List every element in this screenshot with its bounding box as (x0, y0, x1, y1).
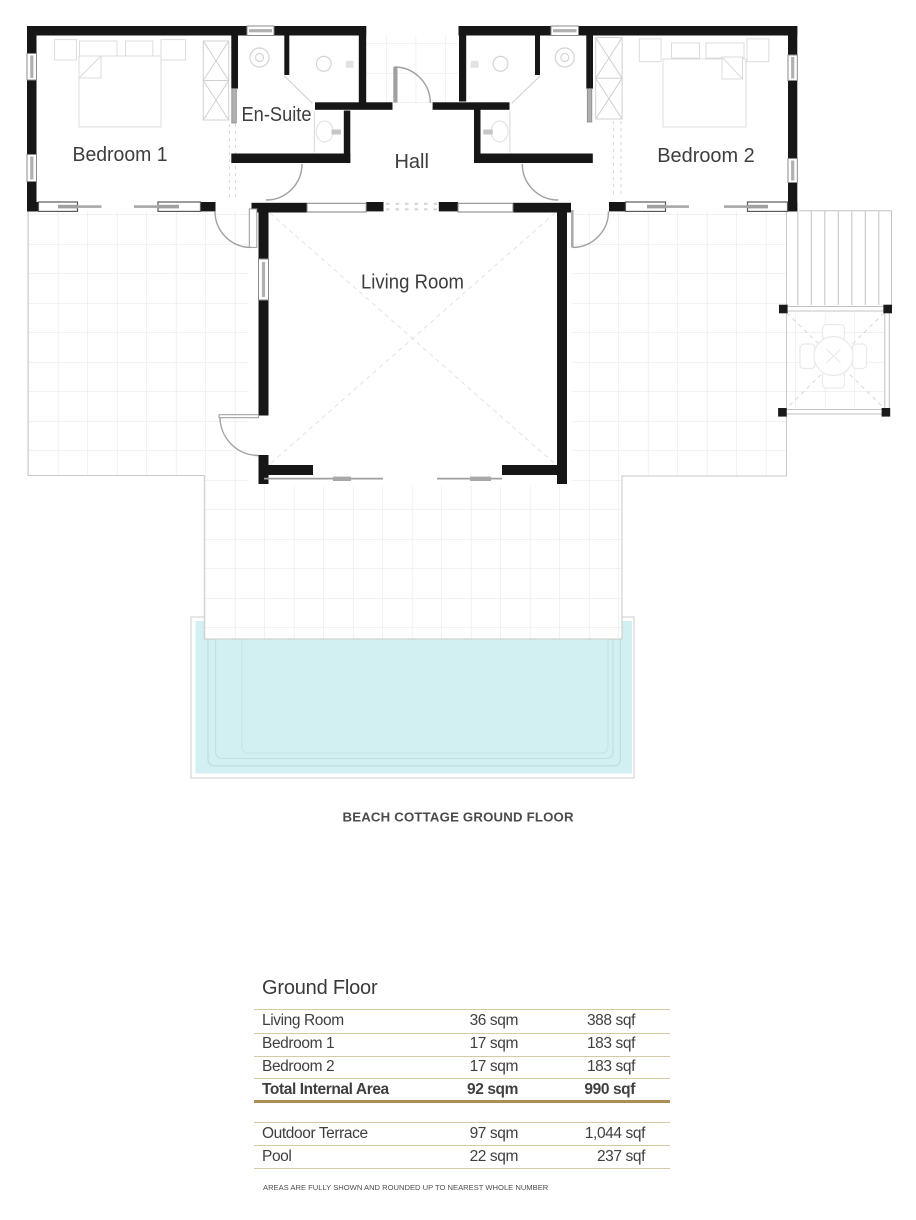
svg-text:Bedroom 1: Bedroom 1 (73, 144, 168, 166)
svg-text:BEACH COTTAGE GROUND FLOOR: BEACH COTTAGE GROUND FLOOR (343, 810, 574, 825)
svg-text:En-Suite: En-Suite (242, 104, 312, 126)
svg-text:Bedroom 2: Bedroom 2 (657, 145, 755, 167)
svg-text:Hall: Hall (394, 151, 428, 173)
svg-text:Living Room: Living Room (361, 272, 464, 294)
